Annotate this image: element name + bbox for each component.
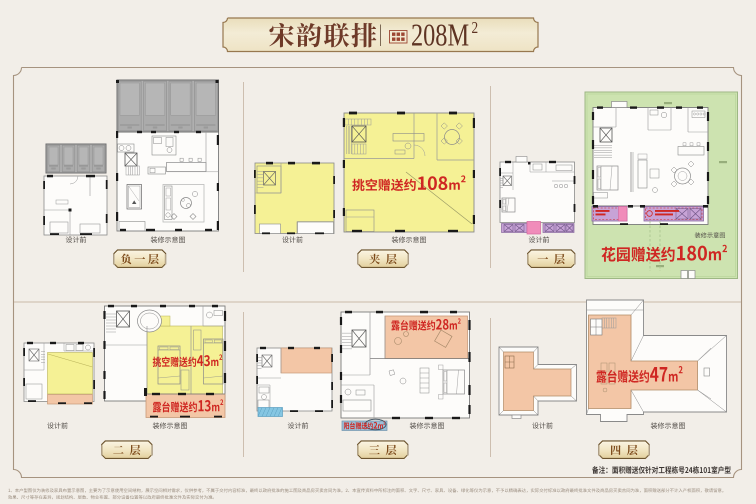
svg-text:208M: 208M xyxy=(411,18,469,53)
svg-text:2: 2 xyxy=(472,19,479,38)
